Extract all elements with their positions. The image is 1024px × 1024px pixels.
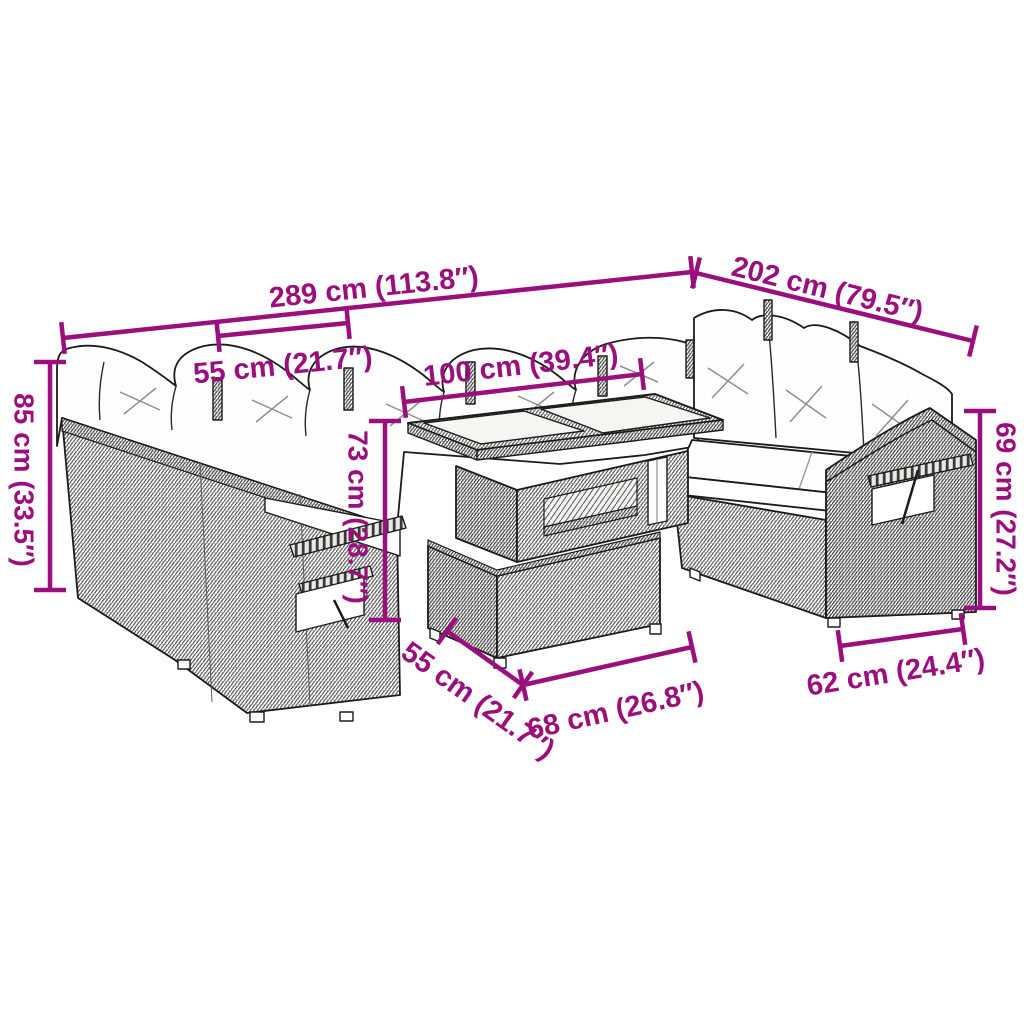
dimension-table-base-width: 68 cm (26.8″)	[520, 631, 707, 746]
dimension-label-arm-height: 69 cm (27.2″)	[991, 422, 1022, 596]
dimension-diagram: 289 cm (113.8″) 202 cm (79.5″) 55 cm (21…	[0, 0, 1024, 1024]
table-upper-left-face	[456, 466, 517, 562]
table-illustration	[408, 394, 723, 668]
dimension-total-width: 289 cm (113.8″)	[61, 256, 693, 354]
diagram-canvas: 289 cm (113.8″) 202 cm (79.5″) 55 cm (21…	[0, 0, 1024, 1024]
dimension-label-seat-depth: 62 cm (24.4″)	[804, 643, 987, 703]
dimension-label-table-height: 73 cm (28.7″)	[343, 430, 374, 604]
dimension-label-table-base-width: 68 cm (26.8″)	[524, 675, 707, 746]
dimension-label-back-height: 85 cm (33.5″)	[9, 393, 40, 567]
right-sofa-illustration	[674, 300, 976, 627]
right-rattan-base	[674, 494, 826, 618]
